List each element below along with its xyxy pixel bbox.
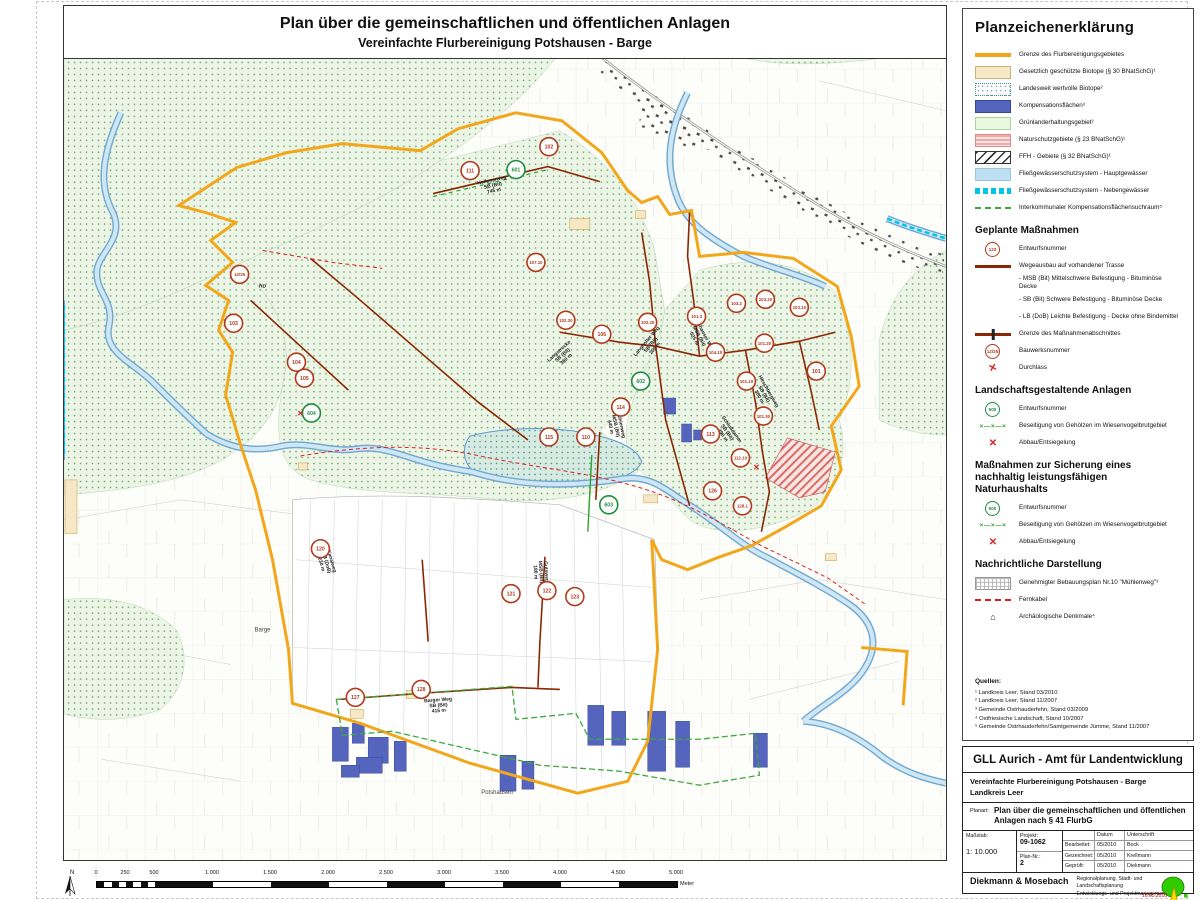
massstab-label: Maßstab:	[966, 833, 1013, 839]
scalebar-block	[619, 882, 677, 887]
lblue-swatch	[975, 168, 1011, 181]
svg-text:604: 604	[307, 411, 316, 417]
map-marker: 603	[600, 496, 618, 514]
plan-sheet: HollenerwegSB (Bit)745 mLangstreckeSB (B…	[0, 0, 1200, 900]
svg-text:104.10: 104.10	[709, 350, 723, 355]
legend-item: Fernkabel	[975, 592, 1181, 608]
planart-row: Planart: Plan über die gemeinschaftliche…	[963, 803, 1193, 831]
map-marker: 101	[807, 362, 825, 380]
scalebar-block	[387, 882, 445, 887]
legend-item: Kompensationsflächen³	[975, 98, 1181, 114]
scalebar-label: 4.500	[611, 870, 625, 876]
legend-item-label: - LB (DoB) Leichte Befestigung - Decke o…	[1019, 313, 1178, 321]
legend-item-label: Wegeausbau auf vorhandener Trasse	[1019, 262, 1124, 270]
svg-text:603: 603	[604, 503, 613, 509]
map-marker: 103.20	[756, 290, 774, 308]
signature-cell: Geprüft:	[1063, 861, 1095, 871]
map-marker: 101.20	[755, 334, 773, 352]
legend-item: Interkommunaler Kompensationsflächensuch…	[975, 200, 1181, 216]
legend-groups: Grenze des FlurbereinigungsgebietesGeset…	[975, 46, 1181, 626]
none-swatch	[975, 300, 1011, 301]
legend-item: Grünlanderhaltungsgebiet²	[975, 115, 1181, 131]
map-marker: 601	[507, 161, 525, 179]
legend-item: Fließgewässerschutzsystem - Nebengewässe…	[975, 183, 1181, 199]
legend-item-label: - MSB (Bit) Mittelschwere Befestigung - …	[1019, 275, 1181, 291]
legend-item-label: Fließgewässerschutzsystem - Hauptgewässe…	[1019, 170, 1147, 178]
signature-grid: DatumUnterschriftBearbeitet:05/2010BockG…	[1063, 831, 1193, 872]
dkred-swatch	[975, 265, 1011, 268]
orange-swatch	[975, 53, 1011, 57]
scalebar-block	[97, 882, 104, 887]
svg-text:101: 101	[812, 369, 821, 375]
legend-item: - MSB (Bit) Mittelschwere Befestigung - …	[975, 275, 1181, 291]
legend-item: ×—×—×Beseitigung von Gehölzen im Wiesenv…	[975, 517, 1181, 533]
svg-text:123: 123	[571, 594, 580, 600]
dots-swatch	[975, 83, 1011, 96]
svg-text:12/25: 12/25	[234, 272, 246, 277]
hatch-swatch	[975, 151, 1011, 164]
map-marker: 111	[461, 162, 479, 180]
legend-item: 12/25Bauwerksnummer	[975, 343, 1181, 359]
scalebar-block	[329, 882, 387, 887]
legend-item-label: Kompensationsflächen³	[1019, 102, 1085, 110]
scalebar-block	[445, 882, 503, 887]
map-marker: 102.30	[557, 311, 575, 329]
legend-item-label: Bauwerksnummer	[1019, 347, 1070, 355]
legend-item-label: Grünlanderhaltungsgebiet²	[1019, 119, 1094, 127]
source-line: ⁵ Gemeinde Ostrhauderfehn/Samtgemeinde J…	[975, 723, 1181, 732]
map-marker: 101.10	[737, 372, 755, 390]
signature-cell: 05/2010	[1095, 861, 1125, 871]
signature-cell: 05/2010	[1095, 841, 1125, 851]
legend-item-label: Abbau/Entsiegelung	[1019, 538, 1075, 546]
signature-cell: Bock	[1125, 841, 1193, 851]
legend-item-label: - SB (Bit) Schwere Befestigung - Bitumin…	[1019, 296, 1162, 304]
svg-text:111: 111	[466, 168, 474, 174]
circr-swatch: 12/25	[985, 344, 1000, 359]
map-marker: 123	[566, 588, 584, 606]
map-frame: HollenerwegSB (Bit)745 mLangstreckeSB (B…	[63, 5, 947, 861]
map-marker: 602	[632, 372, 650, 390]
scalebar-block	[133, 882, 140, 887]
scalebar-block	[271, 882, 329, 887]
xxx-swatch: ×—×—×	[975, 519, 1011, 532]
svg-text:103.2: 103.2	[731, 301, 743, 306]
project-lines: Vereinfachte Flurbereinigung Potshausen …	[963, 773, 1193, 803]
source-line: ⁴ Ostfriesische Landschaft, Stand 10/200…	[975, 715, 1181, 724]
place-label: Potshausen	[481, 790, 513, 796]
svg-text:103: 103	[229, 321, 238, 327]
map-marker: 112.10	[731, 449, 749, 467]
svg-text:101.30: 101.30	[757, 414, 771, 419]
map-marker: 128	[412, 680, 430, 698]
legend-item-label: Durchlass	[1019, 364, 1047, 372]
circg-swatch: 600	[985, 501, 1000, 516]
legend-item-label: Beseitigung von Gehölzen im Wiesenvogelb…	[1019, 521, 1167, 529]
svg-text:101.3: 101.3	[691, 314, 703, 319]
map-marker: 104	[287, 353, 305, 371]
legend-item-label: Gesetzlich geschützte Biotope (§ 30 BNat…	[1019, 68, 1156, 76]
map-marker: 103.2	[727, 294, 745, 312]
title-block: GLL Aurich - Amt für Landentwicklung Ver…	[962, 746, 1194, 894]
map-marker: 113	[702, 425, 720, 443]
legend-group-heading: Maßnahmen zur Sicherung eines nachhaltig…	[975, 460, 1181, 496]
scalebar-label: 3.500	[495, 870, 509, 876]
cream-swatch	[975, 66, 1011, 79]
legend-item: ✕Abbau/Entsiegelung	[975, 534, 1181, 550]
legend-item: Genehmigter Bebauungsplan Nr.10 "Mühlenw…	[975, 575, 1181, 591]
legend-item-label: Fernkabel	[1019, 596, 1047, 604]
firm-name: Diekmann & Mosebach	[970, 876, 1069, 886]
legend-item-label: FFH - Gebiete (§ 32 BNatSchG)¹	[1019, 153, 1111, 161]
legend-item: Gesetzlich geschützte Biotope (§ 30 BNat…	[975, 64, 1181, 80]
map-marker: 128.1	[733, 497, 751, 515]
map-marker: 115	[540, 428, 558, 446]
signature-cell: Datum	[1095, 831, 1125, 841]
legend-item: ✕Durchlass	[975, 360, 1181, 376]
firm-desc-line1: Regionalplanung, Stadt- und Landschaftsp…	[1077, 876, 1143, 890]
svg-text:126: 126	[708, 489, 717, 495]
circr-swatch: 123	[985, 242, 1000, 257]
map-title: Plan über die gemeinschaftlichen und öff…	[280, 15, 730, 33]
map-marker: 107.10	[527, 253, 545, 271]
scalebar-label: 5.000	[669, 870, 683, 876]
projekt-sub: Projekt: 09-1062	[1017, 831, 1062, 852]
durch-swatch: ✕	[974, 357, 1012, 379]
agency-name: GLL Aurich - Amt für Landentwicklung	[963, 747, 1193, 773]
title-block-table: Maßstab: 1: 10.000 Projekt: 09-1062 Plan…	[963, 831, 1193, 873]
legend-item-label: Entwurfsnummer	[1019, 405, 1067, 413]
source-line: ¹ Landkreis Leer, Stand 03/2010	[975, 689, 1181, 698]
svg-text:104: 104	[292, 360, 301, 366]
scalebar-label: 2.500	[379, 870, 393, 876]
svg-text:103.20: 103.20	[759, 297, 773, 302]
svg-text:120: 120	[316, 547, 325, 553]
place-label: Barge	[255, 628, 272, 634]
legend-item: ×—×—×Beseitigung von Gehölzen im Wiesenv…	[975, 418, 1181, 434]
cross-swatch	[975, 333, 1011, 336]
scalebar-unit: Meter	[680, 881, 694, 887]
legend-item-label: Beseitigung von Gehölzen im Wiesenvogelb…	[1019, 422, 1167, 430]
abbau-x-mark: ✕	[753, 463, 760, 472]
project-line2: Landkreis Leer	[970, 787, 1186, 798]
project-line1: Vereinfachte Flurbereinigung Potshausen …	[970, 776, 1186, 787]
map-marker: 103.10	[790, 298, 808, 316]
scalebar-block	[104, 882, 111, 887]
signature-cell: Krellmann	[1125, 851, 1193, 861]
svg-text:114: 114	[617, 405, 625, 411]
svg-text:101.10: 101.10	[740, 379, 754, 384]
map-marker: 120	[311, 540, 329, 558]
svg-text:601: 601	[512, 167, 521, 173]
legend-item: 500Entwurfsnummer	[975, 401, 1181, 417]
svg-text:102.30: 102.30	[559, 318, 573, 323]
scalebar-block	[213, 882, 271, 887]
legend-item-label: Grenze des Maßnahmenabschnittes	[1019, 330, 1121, 338]
legend-item-label: Interkommunaler Kompensationsflächensuch…	[1019, 204, 1162, 212]
legend-item: 123Entwurfsnummer	[975, 241, 1181, 257]
map-marker: 104.10	[707, 343, 725, 361]
green-swatch	[975, 117, 1011, 130]
scalebar-label: 1.500	[263, 870, 277, 876]
legend-item-label: Archäologische Denkmale⁴	[1019, 613, 1095, 621]
legend-item-label: Naturschutzgebiete (§ 23 BNatSchG)¹	[1019, 136, 1125, 144]
sources-heading: Quellen:	[975, 678, 1181, 685]
scalebar-label: 3.000	[437, 870, 451, 876]
map-marker: 101.30	[754, 407, 772, 425]
projekt-cell: Projekt: 09-1062 Plan-Nr.: 2	[1017, 831, 1063, 872]
massstab-cell: Maßstab: 1: 10.000	[963, 831, 1017, 872]
map-marker: 106	[593, 325, 611, 343]
scalebar-label: 2.000	[321, 870, 335, 876]
massstab-value: 1: 10.000	[966, 847, 1013, 856]
svg-text:128.1: 128.1	[737, 504, 749, 509]
svg-text:106: 106	[597, 332, 606, 338]
svg-text:122: 122	[543, 588, 552, 594]
plannr-value: 2	[1020, 860, 1024, 867]
legend-item: 600Entwurfsnummer	[975, 500, 1181, 516]
legend-item: Grenze des Flurbereinigungsgebietes	[975, 47, 1181, 63]
scalebar-label: 4.000	[553, 870, 567, 876]
scalebar-block	[112, 882, 119, 887]
map-marker: 102	[540, 138, 558, 156]
scalebar-block	[141, 882, 148, 887]
map-canvas: HollenerwegSB (Bit)745 mLangstreckeSB (B…	[64, 6, 946, 860]
pink-swatch	[975, 134, 1011, 147]
scalebar-label: 500	[149, 870, 158, 876]
greend-swatch	[975, 207, 1011, 209]
scalebar-labels: 02505001.0001.5002.0002.5003.0003.5004.0…	[96, 870, 736, 878]
scalebar-label: 250	[120, 870, 129, 876]
map-marker: 105	[295, 369, 313, 387]
monu-swatch: ⌂	[975, 611, 1011, 624]
map-marker: 122	[538, 582, 556, 600]
scalebar-block	[126, 882, 133, 887]
circg-swatch: 500	[985, 402, 1000, 417]
north-label-glyph: N	[70, 870, 74, 876]
redx-swatch: ✕	[975, 437, 1011, 450]
svg-text:127: 127	[351, 695, 360, 701]
map-marker: 126	[704, 482, 722, 500]
signature-cell	[1063, 831, 1095, 841]
legend-group-heading: Nachrichtliche Darstellung	[975, 559, 1181, 571]
legend-item: FFH - Gebiete (§ 32 BNatSchG)¹	[975, 149, 1181, 165]
svg-text:103.10: 103.10	[793, 305, 807, 310]
map-marker: 101.3	[688, 307, 706, 325]
projekt-value: 09-1062	[1020, 839, 1046, 846]
road-label: RD	[259, 283, 267, 289]
none-swatch	[975, 317, 1011, 318]
scalebar-block	[148, 882, 155, 887]
legend-sources: Quellen: ¹ Landkreis Leer, Stand 03/2010…	[975, 670, 1181, 732]
svg-text:121: 121	[507, 591, 516, 597]
map-marker: 121	[502, 585, 520, 603]
xxx-swatch: ×—×—×	[975, 420, 1011, 433]
svg-text:102.20: 102.20	[641, 320, 655, 325]
legend-item-label: Landesweit wertvolle Biotope²	[1019, 85, 1103, 93]
scalebar-blocks	[96, 881, 678, 888]
signature-cell: Unterschrift	[1125, 831, 1193, 841]
blue-swatch	[975, 100, 1011, 113]
legend-item-label: Grenze des Flurbereinigungsgebietes	[1019, 51, 1124, 59]
legend-item: Naturschutzgebiete (§ 23 BNatSchG)¹	[975, 132, 1181, 148]
svg-text:113: 113	[706, 432, 714, 438]
sources-lines: ¹ Landkreis Leer, Stand 03/2010² Landkre…	[975, 689, 1181, 732]
legend-group-heading: Landschaftsgestaltende Anlagen	[975, 385, 1181, 397]
svg-text:107.10: 107.10	[529, 260, 543, 265]
legend-item: ⌂Archäologische Denkmale⁴	[975, 609, 1181, 625]
scalebar-block	[155, 882, 213, 887]
map-marker: 12/25	[231, 265, 249, 283]
legend-item: Landesweit wertvolle Biotope²	[975, 81, 1181, 97]
legend-title: Planzeichenerklärung	[975, 19, 1181, 36]
scalebar-block	[503, 882, 561, 887]
redx-swatch: ✕	[975, 536, 1011, 549]
legend-item: - LB (DoB) Leichte Befestigung - Decke o…	[975, 309, 1181, 325]
source-line: ² Landkreis Leer, Stand 11/2007	[975, 697, 1181, 706]
planart-label: Planart:	[970, 808, 989, 814]
map-marker: 102.20	[639, 313, 657, 331]
none-swatch	[975, 283, 1011, 284]
plannr-sub: Plan-Nr.: 2	[1017, 852, 1062, 872]
legend-panel: Planzeichenerklärung Grenze des Flurbere…	[962, 8, 1194, 741]
signature-cell: 05/2010	[1095, 851, 1125, 861]
cyand-swatch	[975, 188, 1011, 194]
north-arrow: N	[62, 868, 82, 898]
scalebar-block	[119, 882, 126, 887]
legend-item-label: Genehmigter Bebauungsplan Nr.10 "Mühlenw…	[1019, 579, 1158, 587]
svg-text:602: 602	[636, 379, 645, 385]
svg-text:112.10: 112.10	[734, 456, 748, 461]
scalebar: 02505001.0001.5002.0002.5003.0003.5004.0…	[96, 870, 736, 898]
plot-date: 16.05.2010	[1142, 893, 1167, 899]
grid-swatch	[975, 577, 1011, 590]
scalebar-block	[561, 882, 619, 887]
legend-item: Grenze des Maßnahmenabschnittes	[975, 326, 1181, 342]
map-marker: 127	[346, 688, 364, 706]
map-marker: 604	[302, 404, 320, 422]
svg-text:128: 128	[417, 687, 426, 693]
signature-cell: Bearbeitet:	[1063, 841, 1095, 851]
map-marker: 110	[577, 428, 595, 446]
svg-text:102: 102	[545, 144, 554, 150]
legend-item: - SB (Bit) Schwere Befestigung - Bitumin…	[975, 292, 1181, 308]
redd-swatch	[975, 599, 1011, 601]
legend-item: Fließgewässerschutzsystem - Hauptgewässe…	[975, 166, 1181, 182]
svg-text:115: 115	[545, 435, 553, 441]
scalebar-label: 0	[94, 870, 97, 876]
map-subtitle: Vereinfachte Flurbereinigung Potshausen …	[358, 36, 652, 50]
signature-cell: Diekmann	[1125, 861, 1193, 871]
svg-text:101.20: 101.20	[758, 341, 772, 346]
abbau-x-mark: ✕	[297, 409, 304, 418]
legend-item-label: Abbau/Entsiegelung	[1019, 439, 1075, 447]
scalebar-label: 1.000	[205, 870, 219, 876]
svg-text:105: 105	[300, 376, 309, 382]
map-marker: 103	[225, 314, 243, 332]
legend-item-label: Entwurfsnummer	[1019, 245, 1067, 253]
legend-item: ✕Abbau/Entsiegelung	[975, 435, 1181, 451]
legend-group-heading: Geplante Maßnahmen	[975, 225, 1181, 237]
legend-item: Wegeausbau auf vorhandener Trasse	[975, 258, 1181, 274]
planart-value: Plan über die gemeinschaftlichen und öff…	[994, 806, 1186, 826]
map-titlebox: Plan über die gemeinschaftlichen und öff…	[64, 6, 946, 59]
map-marker: 114	[612, 398, 630, 416]
source-line: ³ Gemeinde Ostrhauderfehn, Stand 03/2009	[975, 706, 1181, 715]
signature-cell: Gezeichnet:	[1063, 851, 1095, 861]
svg-text:110: 110	[582, 435, 590, 441]
legend-item-label: Entwurfsnummer	[1019, 504, 1067, 512]
legend-item-label: Fließgewässerschutzsystem - Nebengewässe…	[1019, 187, 1149, 195]
